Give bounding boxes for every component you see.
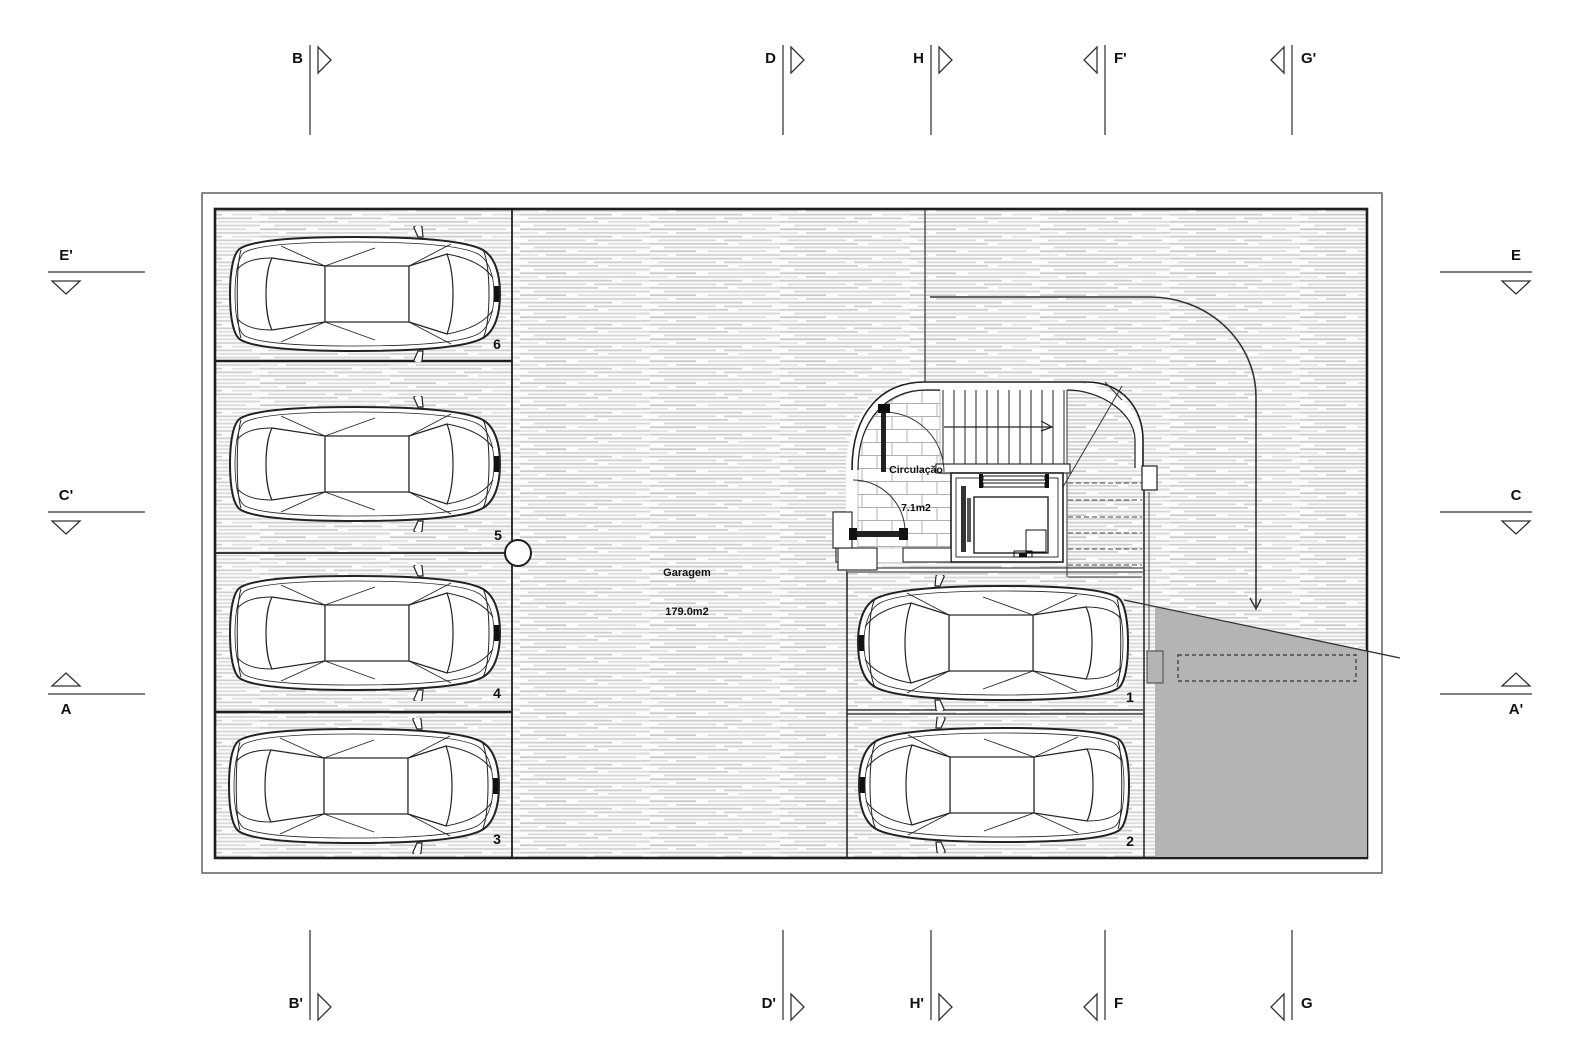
section-marker-label-d-prime: D' <box>731 995 776 1012</box>
section-marker-label-f: F <box>1114 995 1154 1012</box>
section-marker-label-f-prime: F' <box>1114 50 1154 67</box>
parking-space-number-6: 6 <box>486 336 508 352</box>
section-marker-label-a: A <box>36 701 96 718</box>
parking-space-number-2: 2 <box>1119 833 1141 849</box>
parking-space-number-3: 3 <box>486 831 508 847</box>
floor-plan-drawing <box>0 0 1572 1058</box>
section-marker-label-c: C <box>1486 487 1546 504</box>
section-marker-label-b-prime: B' <box>258 995 303 1012</box>
structural-column <box>505 540 531 566</box>
garage-room-label: Garagem 179.0m2 <box>637 541 737 632</box>
section-marker-label-d: D <box>736 50 776 67</box>
section-marker-label-h-prime: H' <box>879 995 924 1012</box>
parking-space-number-4: 4 <box>486 685 508 701</box>
parking-space-number-1: 1 <box>1119 689 1141 705</box>
section-marker-label-g: G <box>1301 995 1341 1012</box>
section-marker-label-b: B <box>263 50 303 67</box>
car-space-5 <box>230 395 500 533</box>
section-marker-label-h: H <box>884 50 924 67</box>
section-marker-label-e: E <box>1486 247 1546 264</box>
circulation-room-label: Circulação 7.1m2 <box>866 438 966 527</box>
circulation-room-name: Circulação <box>866 464 966 476</box>
car-space-3 <box>229 717 499 855</box>
section-marker-label-c-prime: C' <box>36 487 96 504</box>
car-space-6 <box>230 225 500 363</box>
section-marker-label-a-prime: A' <box>1486 701 1546 718</box>
car-space-4 <box>230 564 500 702</box>
circulation-room-area: 7.1m2 <box>866 502 966 514</box>
garage-room-name: Garagem <box>637 567 737 580</box>
elevator <box>951 473 1063 562</box>
car-space-2 <box>859 716 1129 854</box>
floor-plan-sheet: B D H F' G' B' D' H' F G E' C' A E C A' … <box>0 0 1572 1058</box>
section-marker-label-g-prime: G' <box>1301 50 1341 67</box>
garage-room-area: 179.0m2 <box>637 606 737 619</box>
car-space-1 <box>858 574 1128 712</box>
section-marker-label-e-prime: E' <box>36 247 96 264</box>
parking-space-number-5: 5 <box>487 527 509 543</box>
